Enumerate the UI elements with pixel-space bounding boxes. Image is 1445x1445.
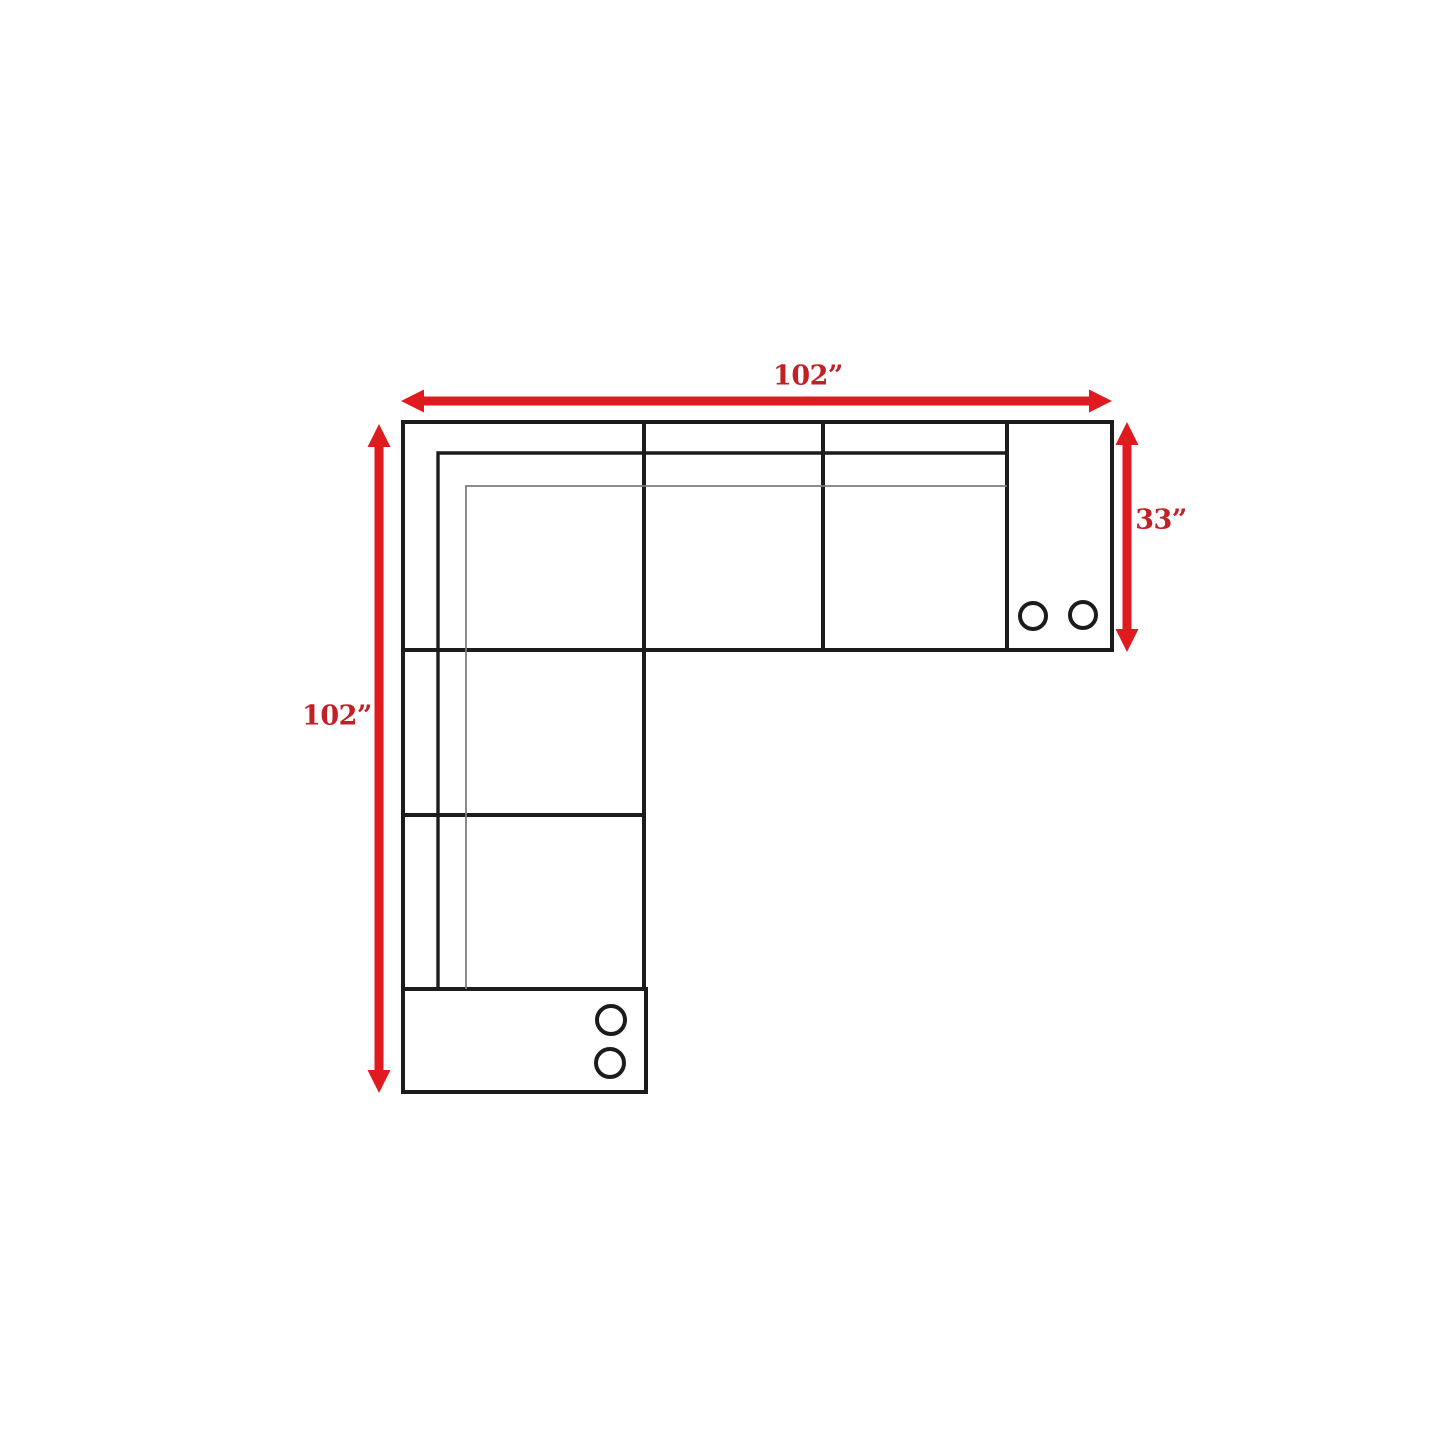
right-depth-dimension-arrow: [1116, 422, 1139, 652]
left-height-dimension-label: 102”: [302, 701, 372, 732]
sofa-dimension-diagram: 102” 102” 33”: [0, 0, 1445, 1445]
cupholder-icon: [596, 1049, 624, 1077]
right-depth-dimension-label: 33”: [1135, 505, 1187, 536]
top-width-dimension-label: 102”: [773, 361, 843, 392]
seat-edge-thin-line: [466, 486, 1007, 989]
backrest-inner-line: [438, 453, 1007, 989]
cupholder-icon: [597, 1006, 625, 1034]
left-height-dimension-arrow: [368, 424, 391, 1093]
top-width-dimension-arrow: [401, 390, 1112, 413]
cupholder-icon: [1020, 603, 1046, 629]
sectional-sofa-drawing: [0, 0, 1445, 1445]
cupholder-icon: [1070, 602, 1096, 628]
